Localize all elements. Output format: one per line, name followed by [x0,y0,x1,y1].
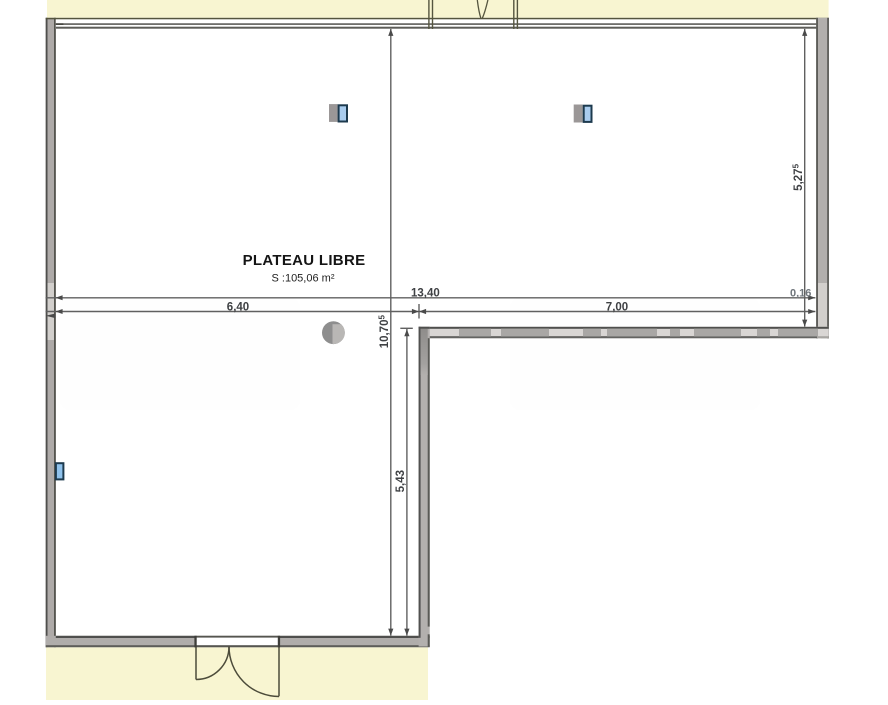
svg-text:PLATEAU LIBRE: PLATEAU LIBRE [243,252,366,269]
svg-text:6,40: 6,40 [227,301,249,313]
svg-text:10,705: 10,705 [377,315,391,349]
svg-text:5,43: 5,43 [395,470,407,492]
svg-text:S :105,06 m²: S :105,06 m² [272,273,335,285]
svg-text:7,00: 7,00 [606,301,628,313]
svg-text:0,16: 0,16 [790,287,811,299]
svg-text:13,40: 13,40 [411,288,440,300]
